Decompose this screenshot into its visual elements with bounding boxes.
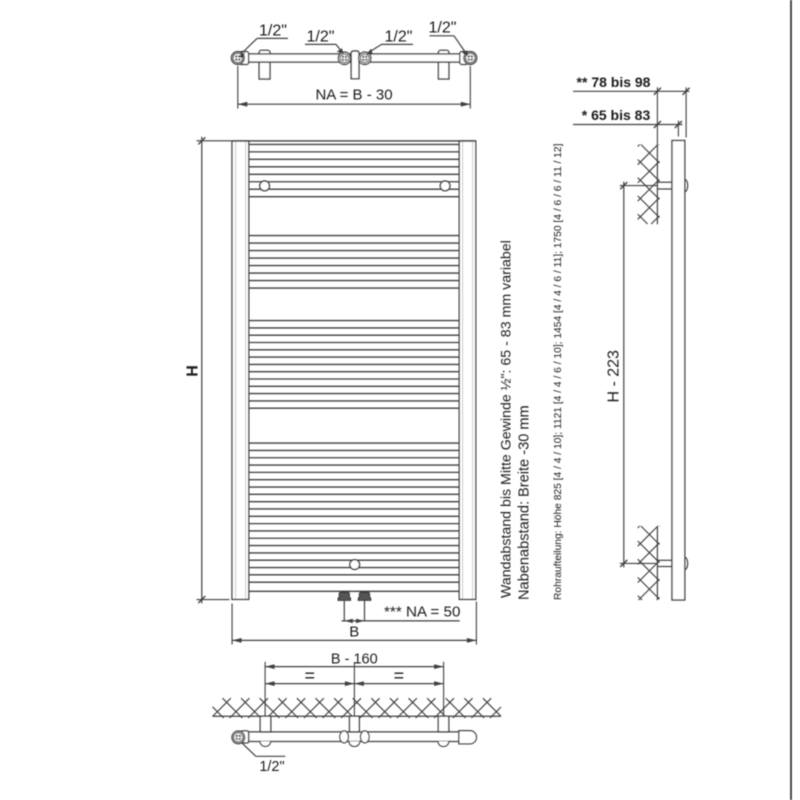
svg-text:NA = B - 30: NA = B - 30 [315, 86, 392, 103]
svg-text:** 78 bis 98: ** 78 bis 98 [577, 74, 651, 90]
svg-text:H - 223: H - 223 [606, 350, 623, 403]
svg-text:* 65 bis 83: * 65 bis 83 [582, 107, 651, 123]
svg-text:B - 160: B - 160 [331, 651, 378, 667]
svg-text:H: H [184, 365, 201, 377]
svg-text:1/2": 1/2" [385, 28, 413, 45]
svg-text:Nabenabstand: Breite -30 mm: Nabenabstand: Breite -30 mm [517, 405, 533, 600]
svg-text:Wandabstand bis Mitte Gewinde: Wandabstand bis Mitte Gewinde ½": 65 - 8… [499, 240, 515, 598]
svg-text:1/2": 1/2" [259, 759, 284, 775]
svg-text:B: B [349, 623, 359, 640]
svg-text:1/2": 1/2" [307, 28, 335, 45]
svg-text:=: = [304, 666, 315, 686]
svg-text:*** NA = 50: *** NA = 50 [384, 603, 460, 620]
svg-text:1/2": 1/2" [429, 20, 457, 37]
svg-text:Rohraufteilung: Höhe 825 [4 /: Rohraufteilung: Höhe 825 [4 / 4 / 10]; 1… [553, 143, 564, 600]
svg-text:=: = [394, 666, 405, 686]
svg-text:1/2": 1/2" [259, 22, 287, 39]
